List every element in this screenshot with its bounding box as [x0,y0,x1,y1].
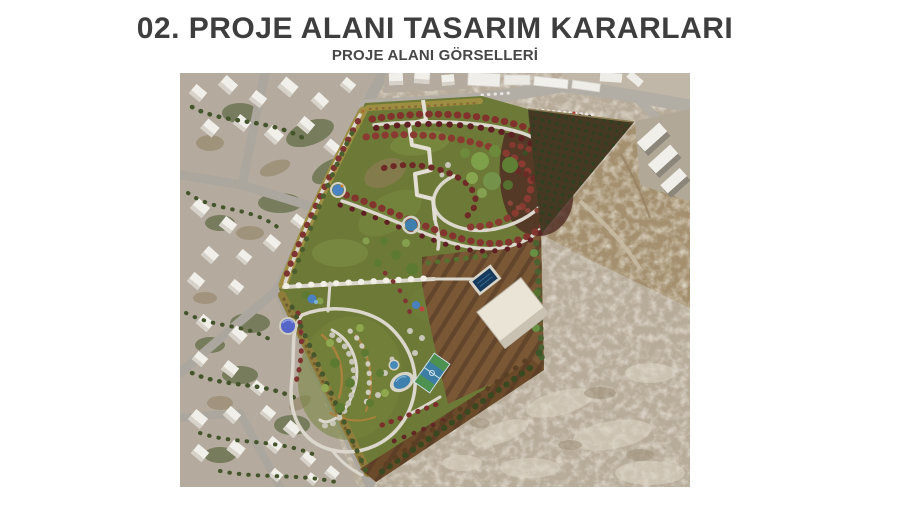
water-feature-center [403,217,419,233]
presentation-slide: 02. PROJE ALANI TASARIM KARARLARI PROJE … [0,0,900,506]
slide-header: 02. PROJE ALANI TASARIM KARARLARI PROJE … [0,12,870,64]
page-title: 02. PROJE ALANI TASARIM KARARLARI [0,12,870,47]
page-subtitle: PROJE ALANI GÖRSELLERİ [0,48,870,65]
playground-upper [331,183,345,197]
aerial-photo-svg [180,73,690,487]
playground-dome [280,318,296,334]
pond-small [389,360,400,371]
project-area-aerial-image [180,73,690,487]
